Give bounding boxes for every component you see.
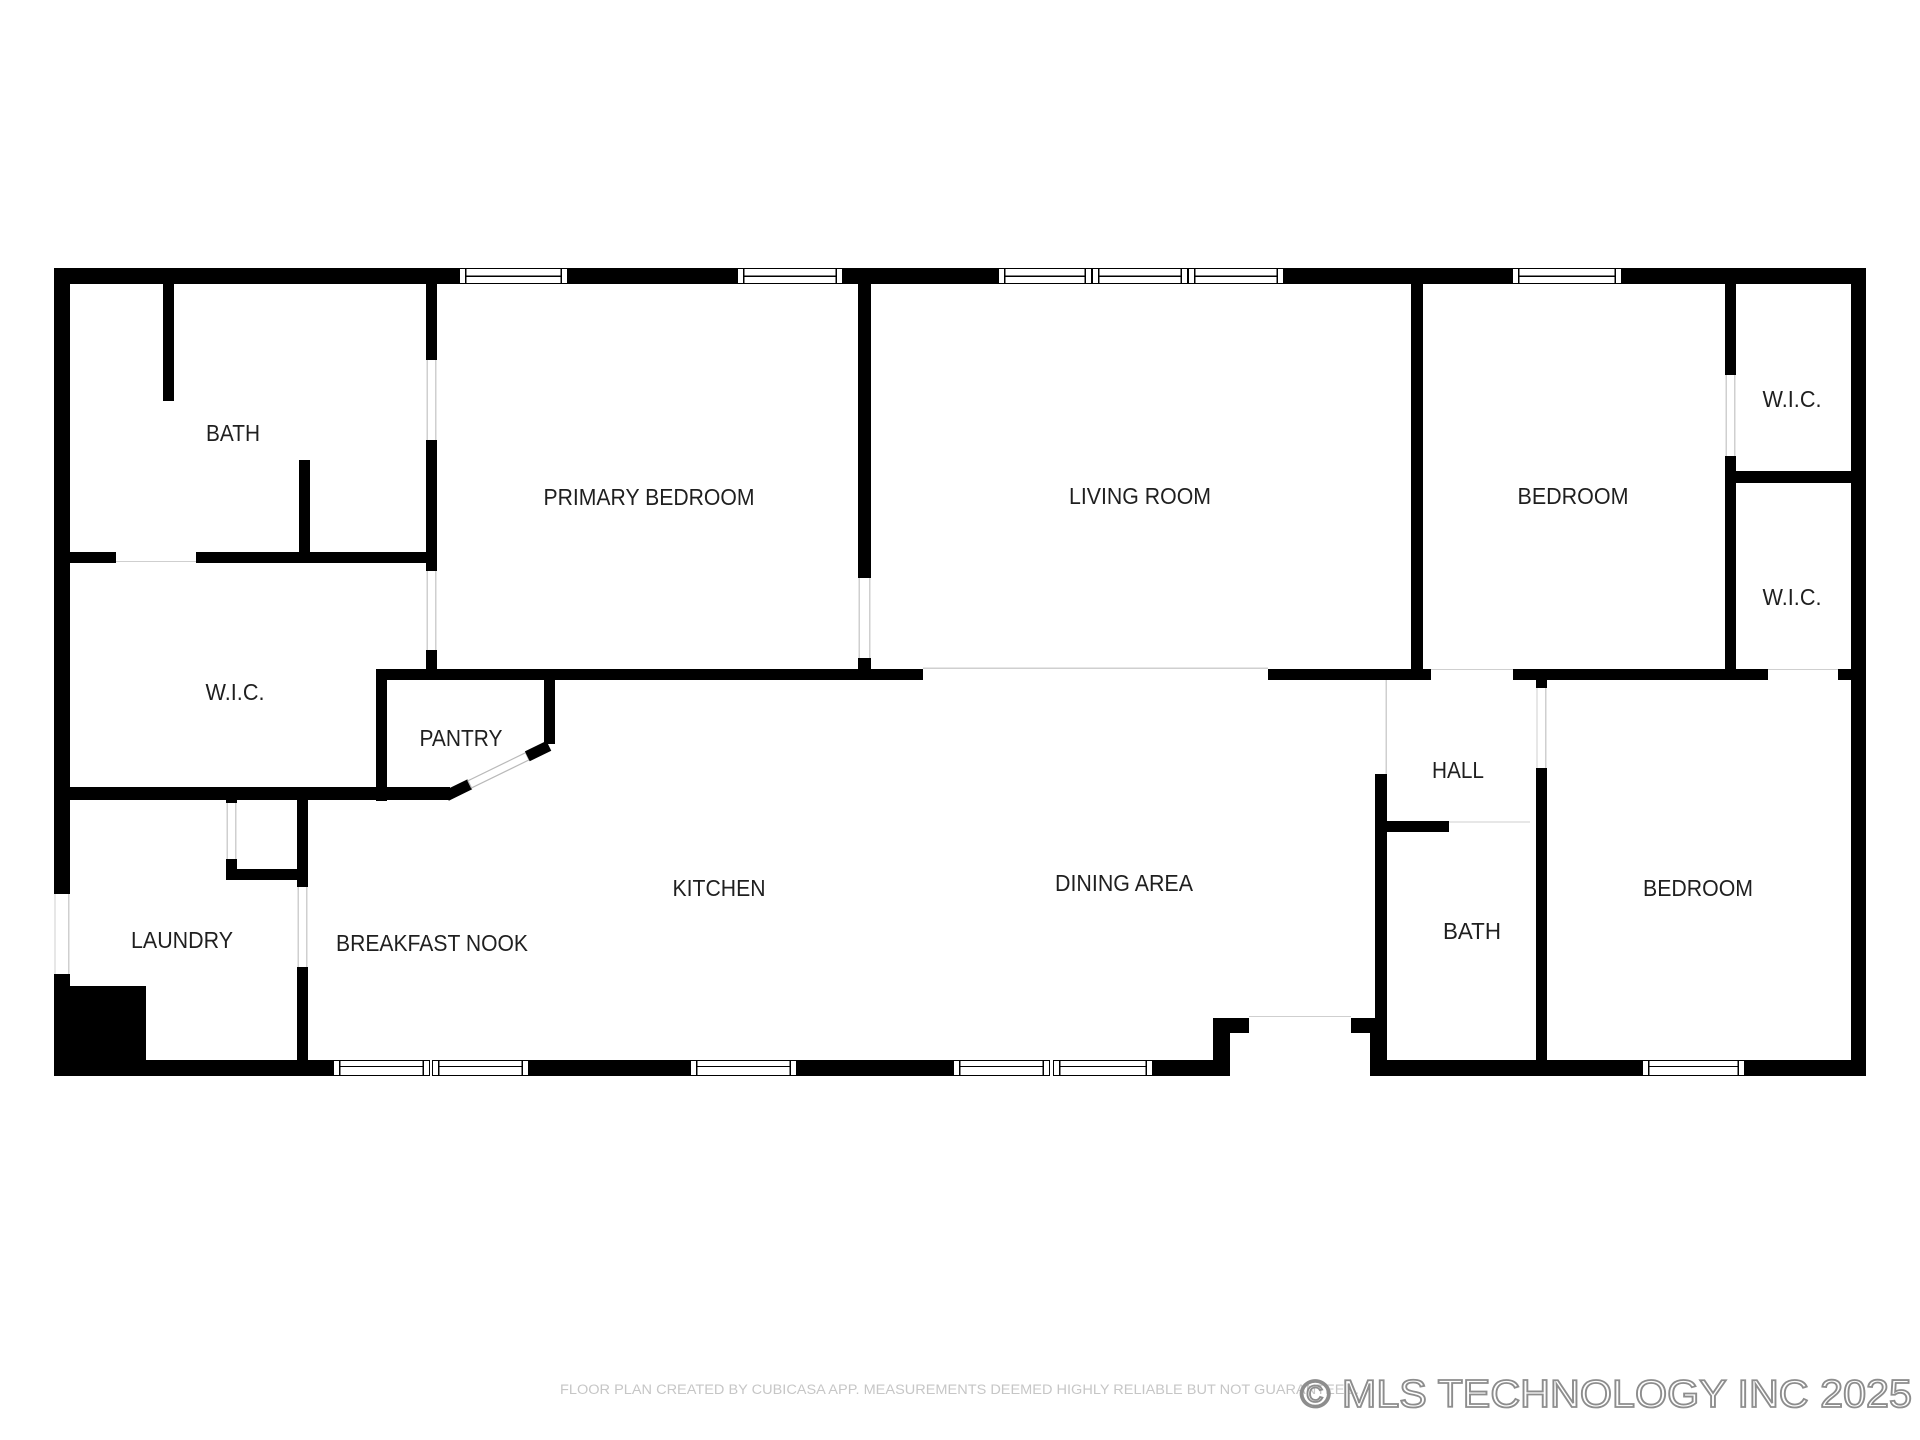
svg-text:FLOOR PLAN CREATED BY CUBICASA: FLOOR PLAN CREATED BY CUBICASA APP. MEAS… [560,1382,1359,1397]
svg-text:HALL: HALL [1432,757,1484,783]
svg-text:BEDROOM: BEDROOM [1643,875,1753,901]
svg-text:W.I.C.: W.I.C. [206,679,265,705]
svg-text:PANTRY: PANTRY [420,725,503,751]
svg-text:BATH: BATH [206,420,260,446]
svg-text:© MLS TECHNOLOGY INC 2025: © MLS TECHNOLOGY INC 2025 [1300,1373,1912,1416]
svg-text:W.I.C.: W.I.C. [1763,386,1822,412]
svg-text:DINING AREA: DINING AREA [1055,870,1194,896]
svg-text:KITCHEN: KITCHEN [673,875,766,901]
svg-text:W.I.C.: W.I.C. [1763,584,1822,610]
svg-text:BATH: BATH [1443,918,1501,944]
svg-text:BEDROOM: BEDROOM [1518,483,1629,509]
svg-text:LIVING ROOM: LIVING ROOM [1069,483,1211,509]
svg-text:PRIMARY BEDROOM: PRIMARY BEDROOM [544,484,755,510]
svg-text:LAUNDRY: LAUNDRY [131,927,233,953]
svg-text:BREAKFAST NOOK: BREAKFAST NOOK [336,930,529,956]
